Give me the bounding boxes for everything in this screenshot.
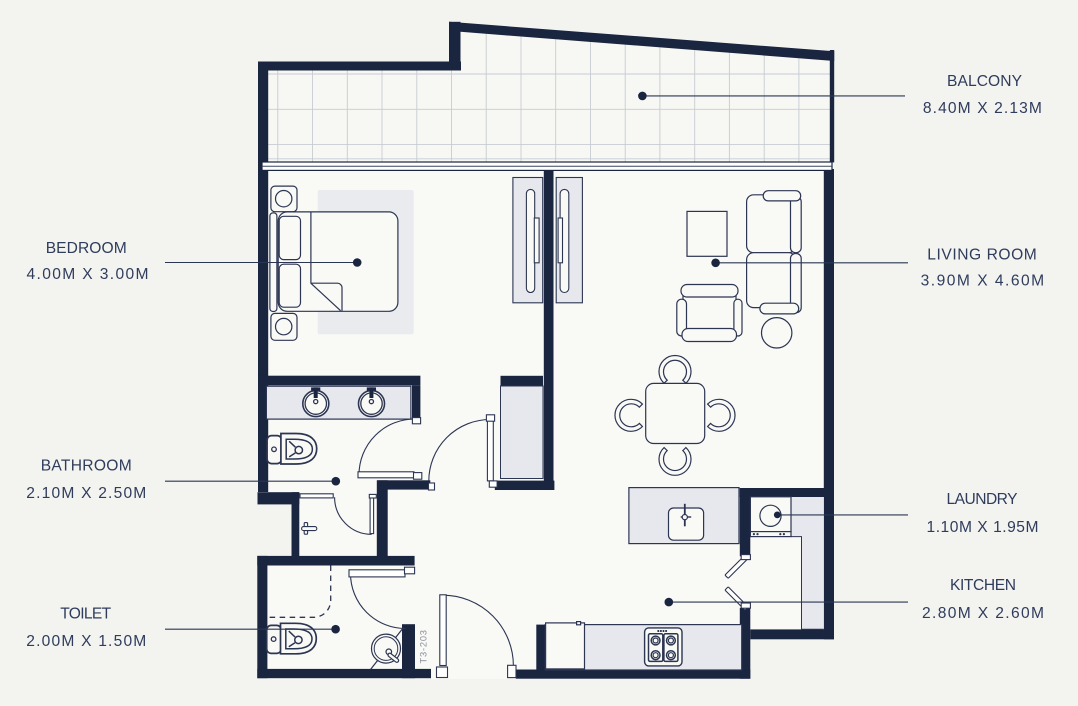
svg-text:TOILET: TOILET <box>60 606 113 623</box>
svg-text:T3-203: T3-203 <box>419 629 429 663</box>
svg-text:KITCHEN: KITCHEN <box>950 577 1018 594</box>
svg-text:2.10M X 2.50M: 2.10M X 2.50M <box>26 485 148 502</box>
svg-text:1.10M X 1.95M: 1.10M X 1.95M <box>927 519 1041 536</box>
svg-text:BALCONY: BALCONY <box>947 73 1024 90</box>
svg-text:BATHROOM: BATHROOM <box>41 458 134 475</box>
svg-text:3.90M X 4.60M: 3.90M X 4.60M <box>921 272 1047 289</box>
svg-text:BEDROOM: BEDROOM <box>46 240 129 257</box>
svg-text:8.40M X 2.13M: 8.40M X 2.13M <box>923 100 1044 117</box>
svg-text:LIVING ROOM: LIVING ROOM <box>927 247 1039 264</box>
svg-text:LAUNDRY: LAUNDRY <box>947 491 1020 508</box>
svg-text:2.00M X 1.50M: 2.00M X 1.50M <box>26 633 148 650</box>
svg-text:4.00M X 3.00M: 4.00M X 3.00M <box>27 266 151 283</box>
svg-text:2.80M X 2.60M: 2.80M X 2.60M <box>922 605 1046 622</box>
